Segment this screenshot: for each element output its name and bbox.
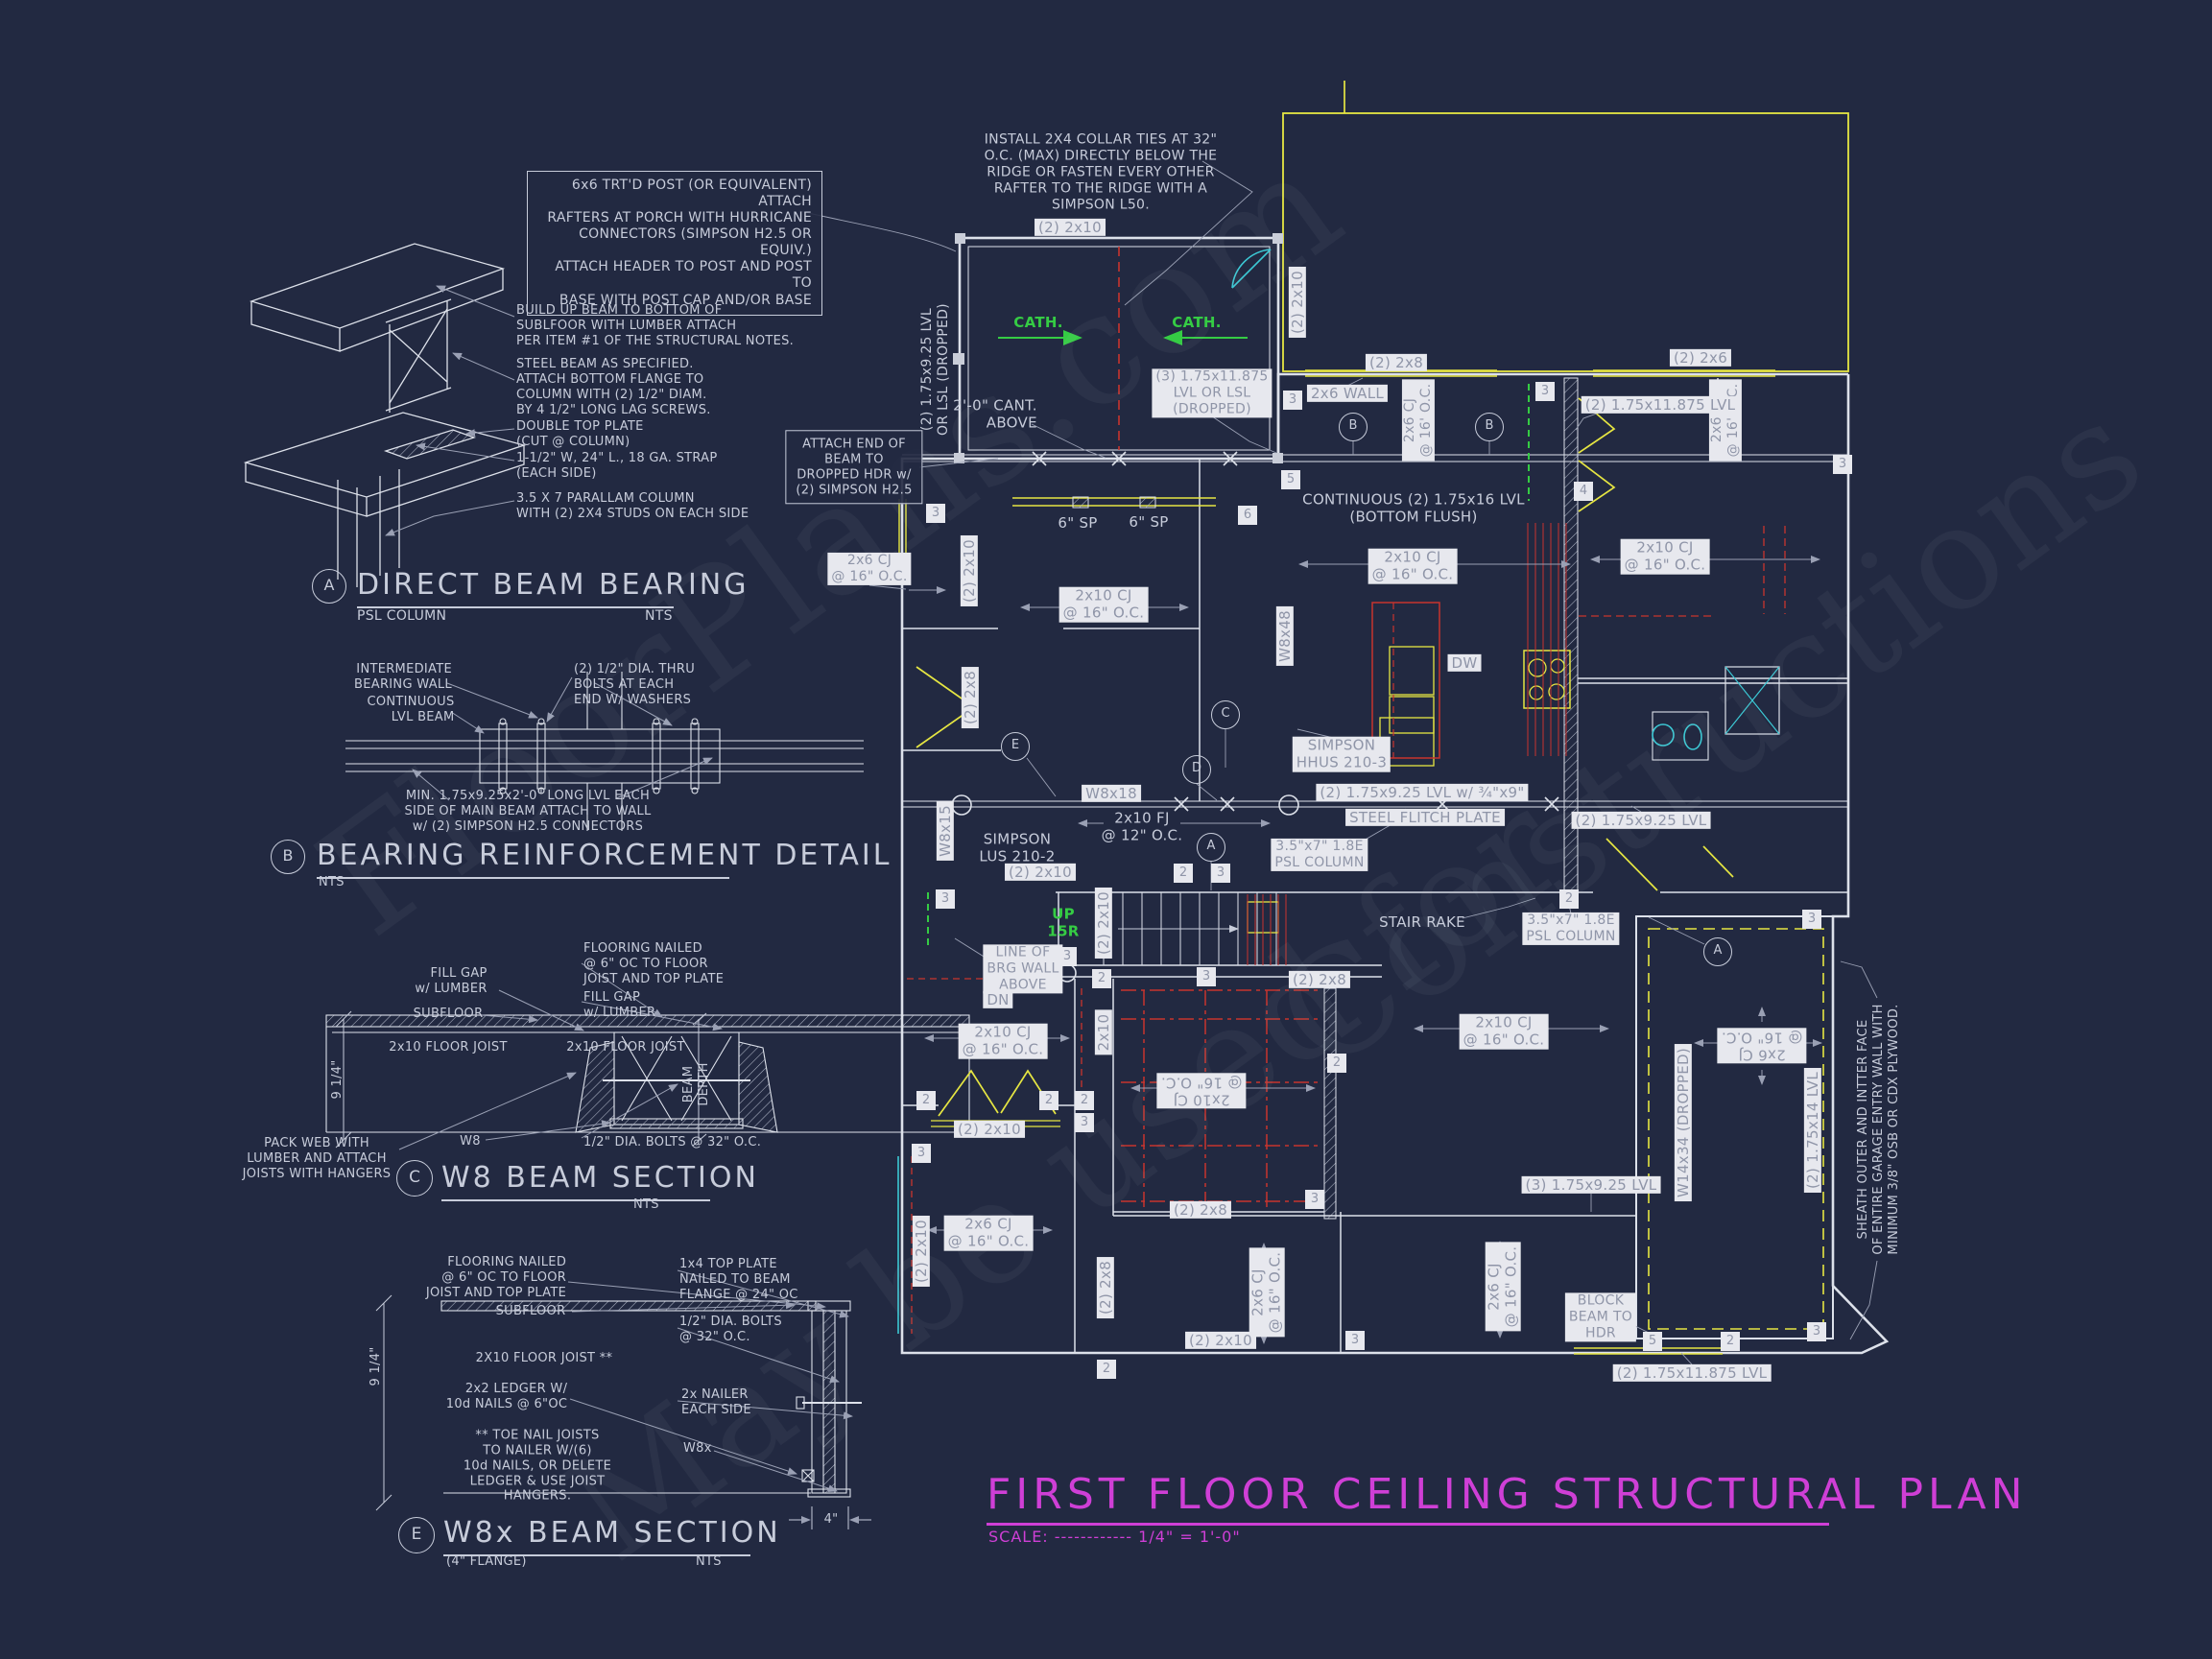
cj-2x6-garage: 2x6 CJ @ 16" O.C. [1718,1029,1807,1064]
cont-lvl: CONTINUOUS (2) 1.75x16 LVL (BOTTOM FLUSH… [1302,491,1525,527]
hdr-2x8-tray: (2) 2x8 [1170,1201,1231,1219]
cath-right: CATH. [1172,314,1221,331]
grid-marker-2: 2 [1721,1332,1740,1351]
porch-header: (2) 2x10 [1035,219,1106,236]
c-bolts: 1/2" DIA. BOLTS @ 32" O.C. [583,1135,761,1150]
e-title: W8x BEAM SECTION [443,1516,750,1556]
note-attach-end: ATTACH END OF BEAM TO DROPPED HDR w/ (2)… [785,430,922,504]
c-joist-left: 2x10 FLOOR JOIST [389,1040,507,1055]
flitch-lvl: (2) 1.75x9.25 LVL w/ ¾"x9" [1316,784,1528,801]
e-callout-flooring: FLOORING NAILED @ 6" OC TO FLOOR JOIST A… [426,1255,566,1301]
cj-2x10-kitchen: 2x10 CJ @ 16" O.C. [1368,549,1458,584]
e-ledger: 2x2 LEDGER W/ 10d NAILS @ 6"OC [446,1382,568,1412]
stair-rake: STAIR RAKE [1379,913,1465,931]
grid-marker-6: 6 [1238,506,1257,525]
c-pack: PACK WEB WITH LUMBER AND ATTACH JOISTS W… [243,1136,392,1182]
grid-marker-3: 3 [912,1144,931,1163]
b-callout-bolts: (2) 1/2" DIA. THRU BOLTS AT EACH END W/ … [574,662,695,708]
b-nts: NTS [319,875,345,890]
grid-marker-3: 3 [1833,455,1852,474]
detail-ref-B: B [1475,413,1504,441]
a-callout-plate: DOUBLE TOP PLATE (CUT @ COLUMN) [516,419,644,450]
c-title: W8 BEAM SECTION [441,1161,710,1201]
hdr-2x10-doors: (2) 2x10 [954,1121,1025,1138]
porch-2x10-right: (2) 2x10 [1289,267,1306,338]
detail-ref-A: A [312,569,346,604]
grid-marker-3: 3 [1345,1331,1365,1350]
dw: DW [1448,654,1482,672]
a-callout-parallam: 3.5 X 7 PARALLAM COLUMN WITH (2) 2X4 STU… [516,491,749,522]
grid-marker-2: 2 [916,1091,936,1110]
e-callout-topplate: 1x4 TOP PLATE NAILED TO BEAM FLANGE @ 24… [679,1257,798,1303]
e-joist: 2X10 FLOOR JOIST ** [476,1351,613,1366]
grid-marker-3: 3 [1075,1113,1094,1132]
cj-2x10-tray: 2x10 CJ @ 16" O.C. [1157,1074,1247,1109]
e-callout-subfloor: SUBFLOOR [496,1304,566,1319]
fj-2x10: 2x10 FJ @ 12" O.C. [1102,810,1183,845]
lvl-925-3: (3) 1.75x9.25 LVL [1522,1176,1661,1194]
b-callout-min: MIN. 1.75x9.25x2'-0" LONG LVL EACH SIDE … [404,789,651,835]
c-callout-flooring: FLOORING NAILED @ 6" OC TO FLOOR JOIST A… [583,941,724,987]
a-title: DIRECT BEAM BEARING [357,568,674,608]
e-toenail: ** TOE NAIL JOISTS TO NAILER W/(6) 10d N… [464,1428,611,1504]
a-callout-steel: STEEL BEAM AS SPECIFIED. ATTACH BOTTOM F… [516,357,711,417]
sheet-scale: SCALE: ------------ 1/4" = 1'-0" [988,1528,1241,1546]
detail-ref-B: B [271,840,305,874]
porch-lvl-left: (2) 1.75x9.25 LVL OR LSL (DROPPED) [919,303,952,436]
sp-left: 6" SP [1058,514,1097,532]
b-title: BEARING REINFORCEMENT DETAIL [317,839,729,879]
e-flange: (4" FLANGE) [446,1554,527,1570]
c-joist-right: 2x10 FLOOR JOIST [566,1040,684,1055]
grid-marker-2: 2 [1092,969,1111,988]
note-6x6-post: 6x6 TRT'D POST (OR EQUIVALENT) ATTACH RA… [527,171,822,316]
flitch-plate: STEEL FLITCH PLATE [1345,809,1505,826]
lvl-175x14: (2) 1.75x14 LVL [1804,1068,1821,1193]
e-dim-914: 9 1/4" [369,1346,384,1386]
grid-marker-3: 3 [936,889,955,909]
grid-marker-3: 3 [1535,382,1555,401]
detail-ref-B: B [1339,413,1368,441]
hdr-2x10-stair-v: (2) 2x10 [1095,888,1112,959]
cant-above: 2'-0" CANT. ABOVE [953,397,1037,433]
grid-marker-3: 3 [1197,967,1216,986]
hdr-2x8-stair: (2) 2x8 [1289,971,1350,988]
block-beam: BLOCK BEAM TO HDR [1565,1292,1636,1341]
grid-marker-3: 3 [1305,1190,1324,1209]
plan-headers-windows [899,81,1848,1354]
c-dim-914: 9 1/4" [330,1059,345,1099]
grid-marker-2: 2 [1327,1054,1346,1073]
sp-right: 6" SP [1129,513,1168,531]
cj-2x10-bl: 2x10 CJ @ 16" O.C. [959,1024,1048,1059]
hdr-2x8-v1: (2) 2x8 [962,667,979,728]
grid-marker-5: 5 [1281,470,1300,489]
grid-marker-2: 2 [1174,864,1193,883]
c-nts: NTS [633,1197,659,1213]
grid-marker-3: 3 [1283,391,1302,410]
cj-2x6-bl: 2x6 CJ @ 16" O.C. [944,1216,1034,1251]
e-nts: NTS [696,1554,722,1570]
grid-marker-2: 2 [1559,889,1579,909]
c-callout-subfloor: SUBFLOOR [414,1007,484,1022]
dn: DN [983,991,1012,1008]
detail-a-drawing [246,244,524,587]
detail-c-drawing [326,1015,969,1132]
hdr-2x10-stair: (2) 2x10 [1005,864,1076,881]
cj-2x10-bedroom: 2x10 CJ @ 16" O.C. [1621,539,1710,575]
beam-w8x18: W8x18 [1082,785,1141,802]
detail-ref-C: C [1211,700,1240,729]
lvl-925-bath: (2) 1.75x9.25 LVL [1572,812,1711,829]
lvl-11875-bed: (2) 1.75x11.875 LVL [1582,396,1740,414]
e-w8x: W8x [683,1441,712,1457]
hdr-2x6: (2) 2x6 [1670,349,1731,367]
a-subtitle: PSL COLUMN [357,608,446,625]
a-callout-buildup: BUILD UP BEAM TO BOTTOM OF SUBLFOOR WITH… [516,303,794,349]
b-callout-lvl: CONTINUOUS LVL BEAM [367,695,454,725]
sheet-title: FIRST FLOOR CEILING STRUCTURAL PLAN [987,1470,1829,1526]
e-dim-4: 4" [824,1512,839,1528]
grid-marker-2: 2 [1039,1091,1058,1110]
beam-w8x15: W8x15 [937,801,954,861]
detail-ref-C: C [396,1160,433,1197]
wall-2x6: 2x6 WALL [1307,385,1388,402]
grid-marker-2: 2 [1075,1091,1094,1110]
cj-2x6-v-fam: 2x6 CJ @ 16" O.C. [1486,1243,1521,1332]
beam-w14x34: W14x34 (DROPPED) [1675,1044,1692,1201]
beam-w8x48: W8x48 [1276,606,1294,666]
c-w8: W8 [460,1134,481,1149]
cj-2x10-left: 2x10 CJ @ 16" O.C. [1059,587,1149,623]
lvl-dropped-3: (3) 1.75x11.875 LVL OR LSL (DROPPED) [1152,368,1272,417]
note-collar-ties: INSTALL 2X4 COLLAR TIES AT 32" O.C. (MAX… [985,131,1218,213]
grid-marker-3: 3 [1802,910,1821,929]
hdr-2x10-stair-v2: 2x10 [1095,1010,1112,1055]
detail-ref-D: D [1182,755,1211,784]
detail-ref-E: E [398,1517,435,1553]
grid-marker-3: 3 [926,504,945,523]
cj-2x6-v2: 2x6 CJ @ 16' O.C. [1709,380,1742,462]
e-callout-bolts: 1/2" DIA. BOLTS @ 32" O.C. [679,1315,782,1345]
grid-marker-3: 3 [1211,864,1230,883]
hdr-2x10-v1: (2) 2x10 [961,535,978,606]
hdr-2x8-v-bl: (2) 2x8 [1097,1257,1114,1318]
a-nts: NTS [645,608,673,625]
up-15r: UP 15R [1047,906,1079,941]
line-of-brg: LINE OF BRG WALL ABOVE [983,944,1062,993]
hdr-2x10-bottom: (2) 2x10 [1185,1332,1256,1349]
e-nailer: 2x NAILER EACH SIDE [681,1387,751,1418]
psl-column-1: 3.5"x7" 1.8E PSL COLUMN [1271,839,1368,871]
c-dim-beamdepth: BEAM DEPTH [681,1062,712,1105]
simpson-lus: SIMPSON LUS 210-2 [979,831,1055,866]
grid-marker-3: 3 [1058,947,1077,966]
cath-left: CATH. [1013,314,1062,331]
grid-marker-4: 4 [1574,482,1593,501]
detail-ref-A: A [1197,833,1225,862]
grid-marker-5: 5 [1643,1332,1662,1351]
blueprint-sheet: FloorPlans.comMay be used forConstructio… [0,0,2212,1659]
cj-2x6-v-bl: 2x6 CJ @ 16" O.C. [1249,1248,1285,1338]
simpson-hhus: SIMPSON HHUS 210-3 [1293,737,1391,772]
note-sheath: SHEATH OUTER AND INTTER FACE OF ENTIRE G… [1856,1004,1902,1254]
grid-marker-2: 2 [1097,1360,1116,1379]
c-callout-fillgap-l: FILL GAP w/ LUMBER [415,966,487,997]
cj-2x10-family: 2x10 CJ @ 16" O.C. [1460,1014,1549,1050]
detail-ref-A: A [1703,937,1732,966]
hdr-2x8: (2) 2x8 [1366,354,1427,371]
c-callout-fillgap-r: FILL GAP w/ LUMBER [583,990,655,1021]
cj-2x6-v1: 2x6 CJ @ 16' O.C. [1402,380,1435,462]
lvl-11875-bottom: (2) 1.75x11.875 LVL [1613,1364,1772,1382]
b-callout-wall: INTERMEDIATE BEARING WALL [354,662,452,693]
psl-column-2: 3.5"x7" 1.8E PSL COLUMN [1522,912,1619,945]
detail-ref-E: E [1001,732,1030,761]
hdr-2x10-v-bl: (2) 2x10 [913,1216,930,1287]
cj-2x6-small: 2x6 CJ @ 16" O.C. [827,553,911,585]
a-callout-strap: 1-1/2" W, 24" L., 18 GA. STRAP (EACH SID… [516,451,718,482]
grid-marker-3: 3 [1807,1322,1826,1341]
